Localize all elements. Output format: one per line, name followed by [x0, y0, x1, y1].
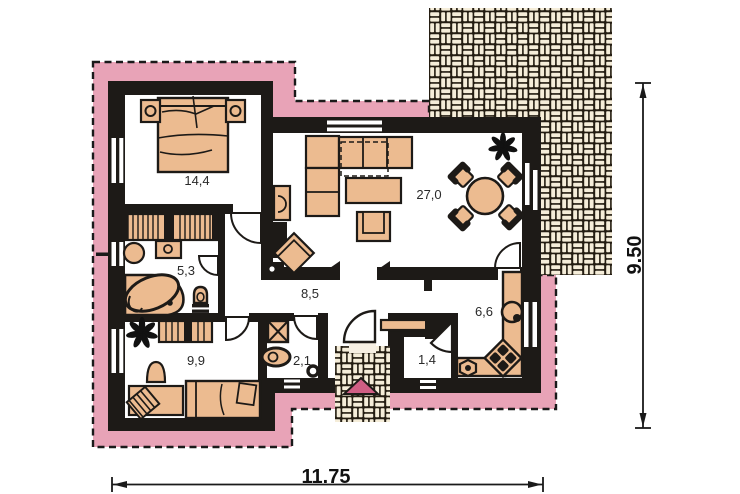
svg-text:6,6: 6,6 [475, 304, 493, 319]
svg-text:5,3: 5,3 [177, 263, 195, 278]
svg-text:8,5: 8,5 [301, 286, 319, 301]
svg-text:9.50: 9.50 [624, 236, 646, 275]
svg-text:1,4: 1,4 [418, 352, 436, 367]
svg-text:27,0: 27,0 [416, 187, 441, 202]
svg-text:9,9: 9,9 [187, 353, 205, 368]
svg-text:2,1: 2,1 [293, 353, 311, 368]
svg-text:14,4: 14,4 [184, 173, 209, 188]
svg-text:11.75: 11.75 [302, 466, 351, 488]
